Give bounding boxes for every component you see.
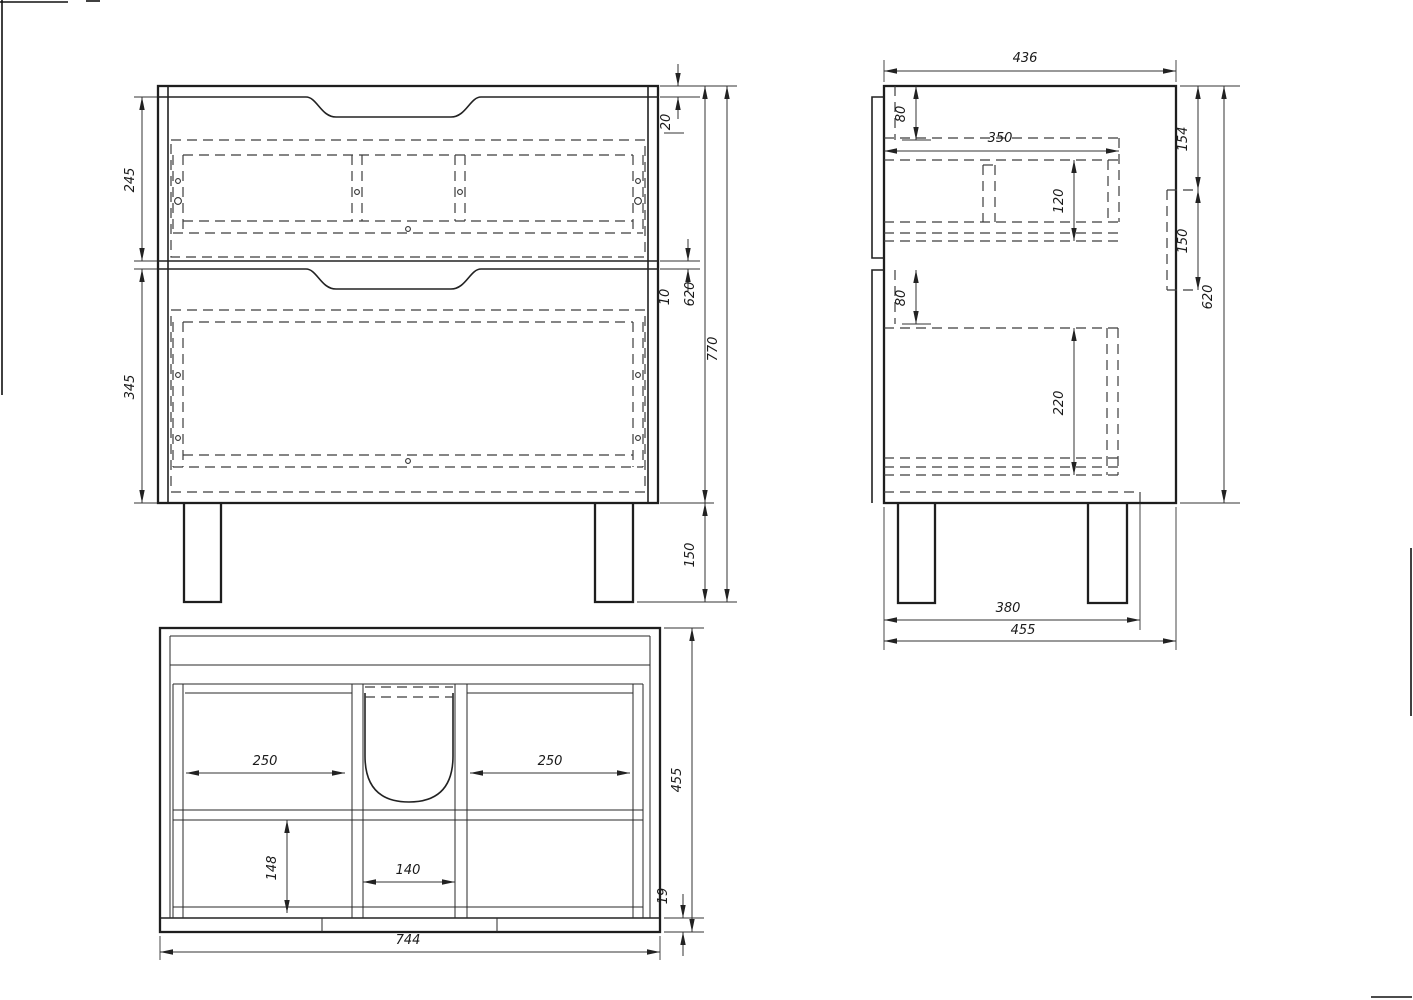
- dim-side-154: 154: [1176, 127, 1191, 152]
- dim-side-436: 436: [1013, 51, 1038, 66]
- dim-side-220: 220: [1052, 391, 1067, 416]
- dim-side-455: 455: [1011, 623, 1036, 638]
- dim-front-245: 245: [123, 168, 138, 193]
- side-view: 436 80 350 120 154 150 80 220 620 380 45…: [872, 51, 1240, 650]
- dim-top-250-left: 250: [253, 754, 278, 769]
- dim-front-770: 770: [706, 337, 721, 362]
- dim-top-744: 744: [396, 933, 421, 948]
- dim-top-455: 455: [670, 768, 685, 793]
- dim-front-620: 620: [683, 282, 698, 307]
- dim-front-20: 20: [659, 114, 674, 131]
- dim-front-10: 10: [658, 289, 673, 306]
- dim-side-80-top: 80: [894, 106, 909, 123]
- dim-side-620: 620: [1201, 285, 1216, 310]
- dim-side-120: 120: [1052, 189, 1067, 214]
- sheet-frame: [0, 0, 1412, 997]
- technical-drawing-canvas: 245 345 20 10 620 770 150: [0, 0, 1413, 1000]
- dim-front-345: 345: [123, 375, 138, 400]
- dim-top-148: 148: [265, 856, 280, 881]
- top-view: 250 250 148 140 455 19 744: [160, 628, 704, 960]
- dim-top-19: 19: [656, 888, 671, 905]
- drawing-sheet: 245 345 20 10 620 770 150: [0, 0, 1413, 1000]
- dim-side-380: 380: [996, 601, 1021, 616]
- dim-top-140: 140: [396, 863, 421, 878]
- dim-side-80-bottom: 80: [894, 290, 909, 307]
- dim-top-250-right: 250: [538, 754, 563, 769]
- dim-side-150: 150: [1176, 229, 1191, 254]
- front-view: 245 345 20 10 620 770 150: [123, 64, 737, 602]
- dim-side-350: 350: [988, 131, 1013, 146]
- dim-front-150: 150: [683, 543, 698, 568]
